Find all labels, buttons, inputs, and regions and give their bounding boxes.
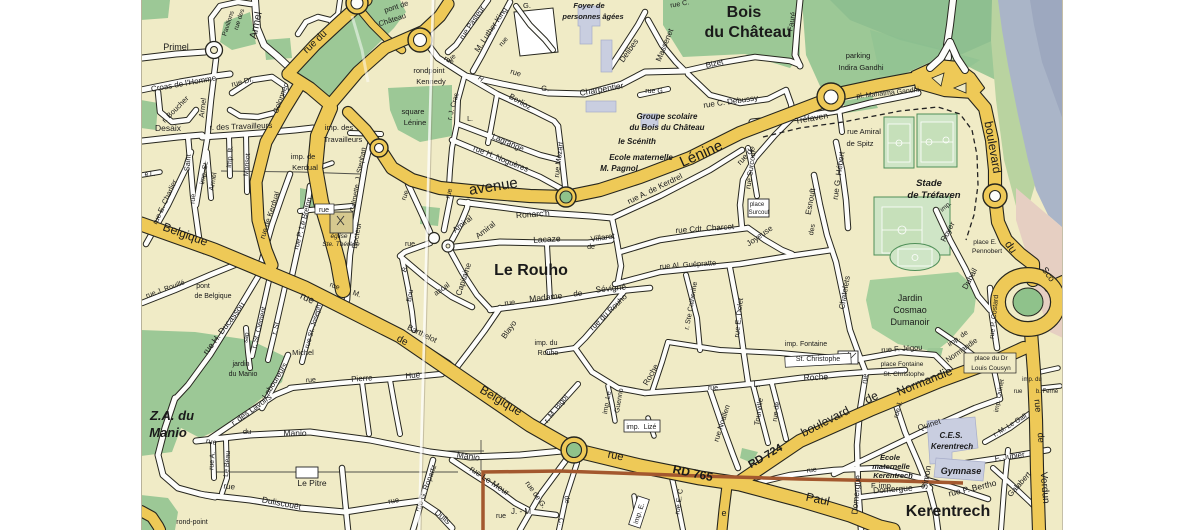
svg-text:Kerentrech: Kerentrech: [873, 471, 913, 480]
svg-text:imp. de: imp. de: [291, 152, 316, 161]
svg-text:le Scénith: le Scénith: [618, 137, 656, 146]
svg-text:rue Amiral: rue Amiral: [847, 127, 881, 136]
svg-text:Pierre: Pierre: [351, 373, 373, 384]
svg-text:rue: rue: [387, 495, 399, 506]
svg-text:rond-point: rond-point: [176, 519, 208, 526]
svg-text:Ste. Thérèse: Ste. Thérèse: [322, 241, 360, 248]
svg-text:rondpoint: rondpoint: [413, 66, 445, 75]
svg-text:L.: L.: [467, 116, 473, 123]
svg-text:Stade: Stade: [916, 178, 943, 189]
svg-text:St. Christophe: St. Christophe: [796, 356, 840, 363]
svg-text:rue: rue: [708, 385, 718, 392]
svg-text:rue: rue: [190, 193, 198, 204]
svg-text:J. - M: J. - M: [511, 507, 531, 516]
svg-text:de: de: [587, 244, 595, 251]
svg-text:St. Christophe: St. Christophe: [883, 371, 925, 378]
svg-text:Kerdual: Kerdual: [292, 163, 318, 172]
svg-text:Dumanoir: Dumanoir: [890, 317, 929, 327]
svg-text:de Tréfaven: de Tréfaven: [907, 190, 960, 201]
svg-text:Jardin: Jardin: [898, 293, 923, 303]
svg-text:du Château: du Château: [704, 24, 791, 41]
svg-text:L.: L.: [754, 380, 761, 389]
svg-text:imp. du: imp. du: [535, 340, 558, 347]
svg-text:Kerentrech: Kerentrech: [906, 503, 990, 520]
svg-text:Roche: Roche: [803, 371, 828, 382]
svg-text:rue: rue: [806, 466, 817, 474]
svg-text:Ecole maternelle: Ecole maternelle: [609, 153, 673, 162]
svg-text:place: place: [750, 202, 765, 208]
svg-text:Ecole: Ecole: [880, 453, 900, 462]
svg-text:Michel: Michel: [292, 348, 314, 357]
svg-text:rue: rue: [223, 482, 236, 492]
svg-text:place Fontaine: place Fontaine: [881, 361, 924, 368]
svg-text:rue: rue: [496, 513, 506, 520]
svg-text:rue: rue: [205, 436, 217, 447]
svg-text:Indira Gandhi: Indira Gandhi: [838, 63, 883, 72]
svg-text:de Spitz: de Spitz: [846, 139, 873, 148]
svg-text:église: église: [331, 233, 348, 240]
svg-text:Rouho: Rouho: [538, 350, 559, 357]
svg-text:Huë: Huë: [405, 370, 421, 380]
svg-text:de Belgique: de Belgique: [195, 293, 232, 300]
svg-text:Manio: Manio: [149, 425, 187, 440]
svg-text:rue: rue: [306, 377, 317, 385]
svg-text:Desaix: Desaix: [155, 123, 182, 133]
svg-text:imp. du: imp. du: [1022, 377, 1042, 383]
svg-text:rue G.: rue G.: [645, 88, 665, 95]
svg-text:Primel: Primel: [163, 42, 189, 52]
svg-text:Foyer de: Foyer de: [573, 1, 604, 10]
svg-text:Surcouf: Surcouf: [749, 210, 770, 216]
svg-text:Travailleurs: Travailleurs: [324, 135, 363, 144]
svg-text:personnes âgées: personnes âgées: [561, 12, 623, 21]
svg-text:maternelle: maternelle: [872, 462, 910, 471]
svg-text:place E.: place E.: [973, 239, 997, 246]
svg-text:M. Pagnol: M. Pagnol: [600, 164, 639, 173]
svg-text:du: du: [243, 427, 251, 436]
svg-text:rue: rue: [405, 241, 415, 248]
svg-text:imp.: imp.: [626, 424, 639, 431]
svg-text:b. Ferné: b. Ferné: [1036, 389, 1059, 395]
svg-text:Kerentrech: Kerentrech: [931, 442, 973, 451]
svg-text:parking: parking: [846, 51, 871, 60]
svg-text:de: de: [1036, 432, 1047, 443]
svg-text:Lizé: Lizé: [644, 424, 657, 431]
svg-text:Gymnase: Gymnase: [941, 466, 982, 476]
svg-text:Pennobert: Pennobert: [972, 248, 1002, 255]
svg-text:du Manio: du Manio: [229, 371, 258, 378]
svg-text:C.E.S.: C.E.S.: [939, 431, 962, 440]
svg-text:rue: rue: [319, 207, 329, 214]
svg-text:C.: C.: [556, 518, 564, 526]
svg-text:pont: pont: [196, 283, 210, 290]
svg-text:Le Rouho: Le Rouho: [494, 262, 568, 279]
svg-text:Lacaze: Lacaze: [533, 233, 561, 244]
svg-text:du Bois du Château: du Bois du Château: [629, 123, 704, 132]
svg-text:rue: rue: [504, 297, 516, 307]
svg-text:de: de: [562, 495, 570, 504]
svg-text:de: de: [573, 289, 583, 299]
svg-text:Manio: Manio: [283, 428, 306, 438]
svg-text:G.: G.: [523, 1, 531, 10]
svg-text:imp. des: imp. des: [325, 123, 354, 132]
svg-text:G.: G.: [541, 84, 550, 94]
svg-text:Z.A. du: Z.A. du: [149, 408, 194, 423]
svg-text:Groupe scolaire: Groupe scolaire: [637, 112, 698, 121]
svg-text:e: e: [721, 508, 726, 518]
svg-text:Bois: Bois: [727, 4, 762, 21]
svg-text:Le Pitre: Le Pitre: [297, 478, 327, 488]
svg-text:place du Dr: place du Dr: [974, 355, 1008, 362]
svg-text:rue: rue: [861, 373, 869, 384]
svg-text:Lénine: Lénine: [404, 118, 427, 127]
svg-text:e L.: e L.: [145, 171, 156, 178]
svg-text:rue: rue: [1014, 389, 1023, 395]
svg-text:Cosmao: Cosmao: [893, 305, 927, 315]
svg-text:imp. Fontaine: imp. Fontaine: [785, 341, 828, 348]
svg-text:square: square: [402, 107, 425, 116]
svg-text:Saint: Saint: [182, 153, 193, 172]
svg-text:jardin: jardin: [231, 361, 249, 368]
svg-text:rue: rue: [1032, 399, 1043, 413]
svg-text:Louis Cousyn: Louis Cousyn: [971, 365, 1011, 372]
